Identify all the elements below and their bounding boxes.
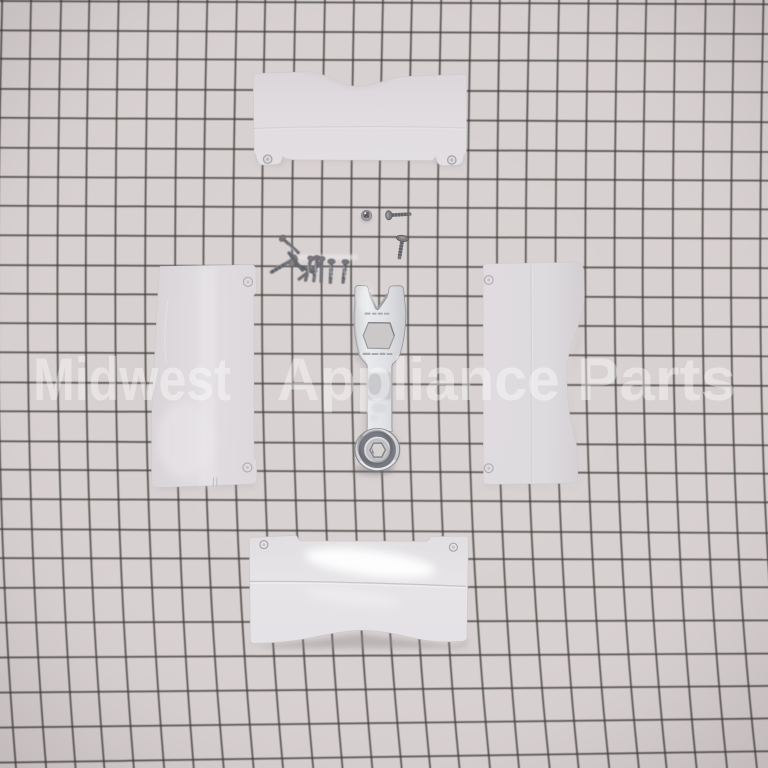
- svg-text:Midwest: Midwest: [33, 346, 231, 413]
- svg-text:Appliance: Appliance: [277, 346, 560, 413]
- svg-text:Parts: Parts: [577, 346, 736, 413]
